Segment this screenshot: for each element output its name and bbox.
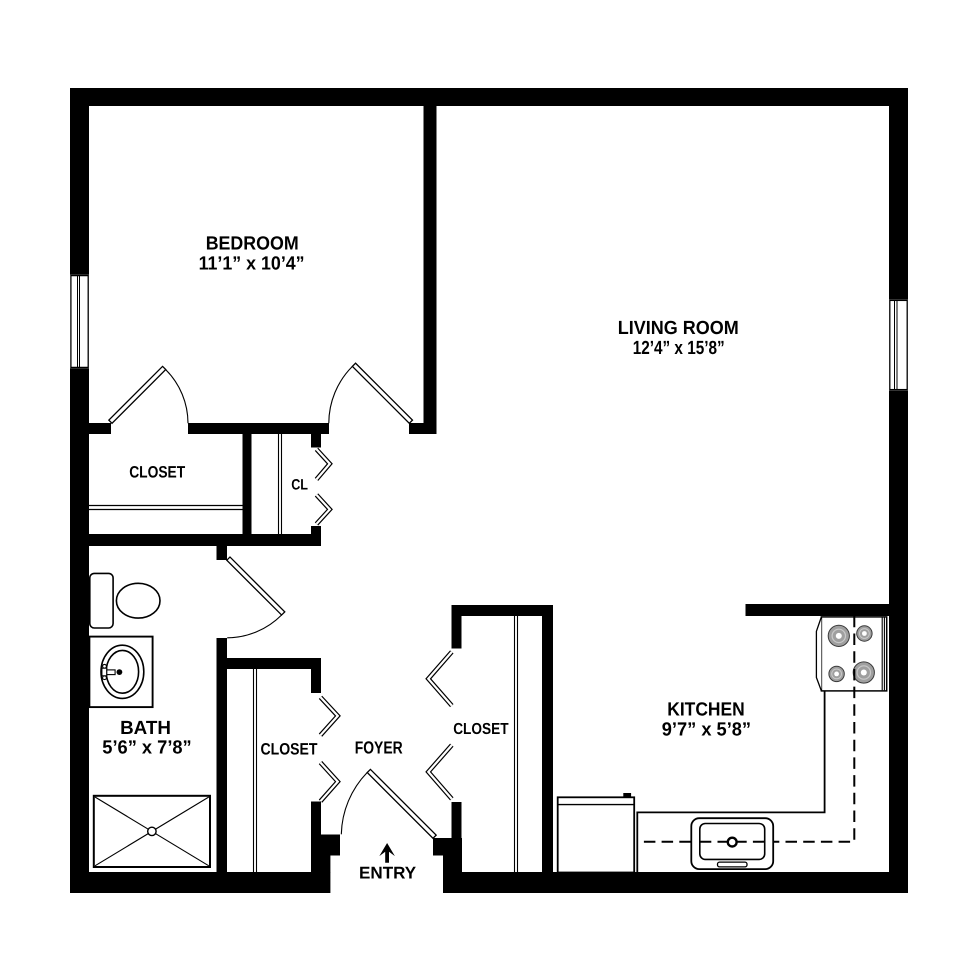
svg-text:LIVING ROOM: LIVING ROOM xyxy=(618,318,739,339)
svg-text:5’6” x 7’8”: 5’6” x 7’8” xyxy=(102,738,191,759)
svg-text:CLOSET: CLOSET xyxy=(453,721,509,738)
svg-text:KITCHEN: KITCHEN xyxy=(667,699,745,720)
svg-text:CL: CL xyxy=(291,477,308,494)
svg-text:9’7” x 5’8”: 9’7” x 5’8” xyxy=(662,720,751,741)
svg-text:CLOSET: CLOSET xyxy=(261,741,318,759)
svg-text:CLOSET: CLOSET xyxy=(129,464,185,482)
svg-text:BATH: BATH xyxy=(120,718,171,739)
svg-text:FOYER: FOYER xyxy=(355,738,403,758)
svg-text:11’1” x 10’4”: 11’1” x 10’4” xyxy=(199,254,305,275)
svg-text:ENTRY: ENTRY xyxy=(359,863,417,882)
svg-text:BEDROOM: BEDROOM xyxy=(206,234,299,255)
svg-text:12’4” x 15’8”: 12’4” x 15’8” xyxy=(633,338,725,359)
